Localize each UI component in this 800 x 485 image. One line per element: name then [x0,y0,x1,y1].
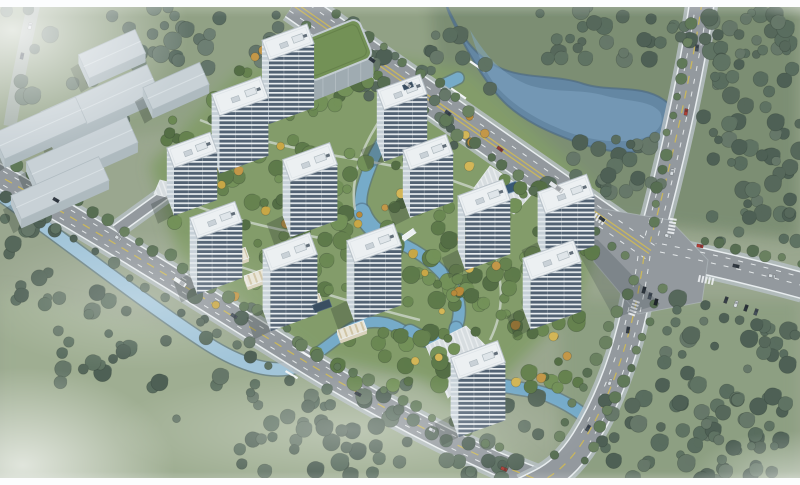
architectural-rendering-image [0,0,800,485]
top-white-border [0,0,800,7]
masterplan-aerial-rendering [0,0,800,485]
ground-fog [110,370,590,485]
bottom-white-border [0,478,800,485]
atmosphere-haze-layer [0,0,800,485]
haze-gradient [600,0,800,90]
